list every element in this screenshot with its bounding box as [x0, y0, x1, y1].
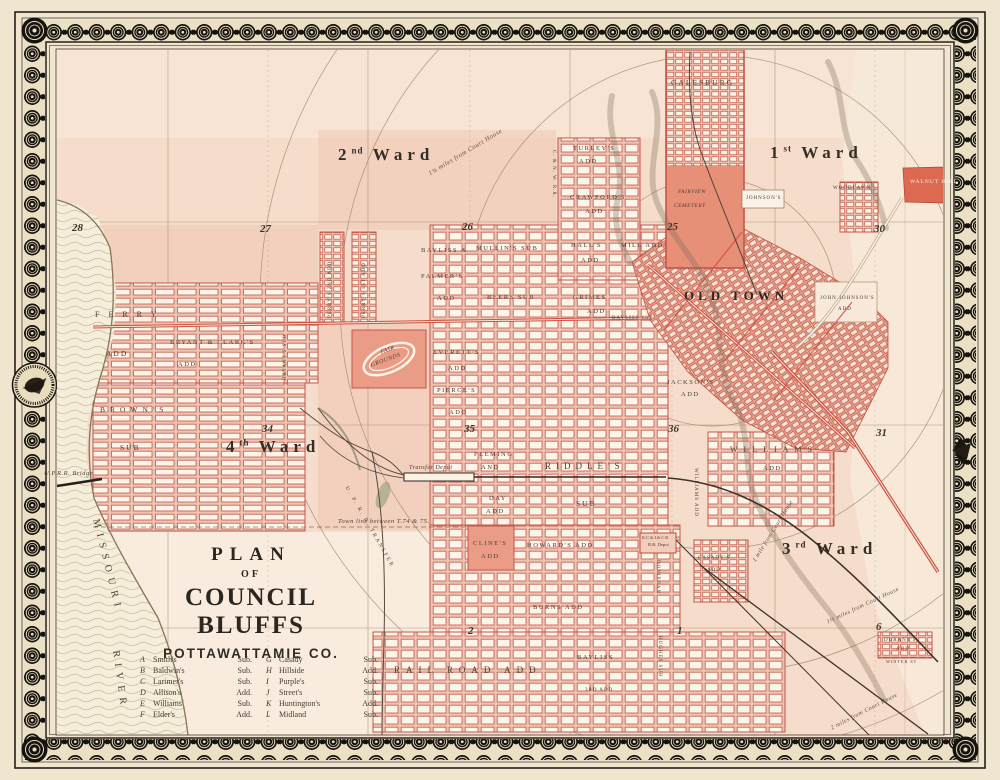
map-sheet: 2nd Ward 1st Ward 3rd Ward 4th Ward 28 2…	[0, 0, 1000, 780]
legend-type: Sub.	[226, 699, 252, 708]
label-john-johnsons-add: ADD	[838, 307, 852, 312]
legend-name: Huntington's	[279, 699, 352, 708]
legend-type: Sub.	[226, 677, 252, 686]
label-bryant-clark-add: ADD	[178, 362, 197, 369]
section-27: 27	[260, 224, 271, 235]
label-clines: CLINE'S	[473, 541, 507, 548]
label-jacksons: JACKSON'S	[667, 380, 715, 387]
legend-type: Add.	[352, 666, 378, 675]
section-30: 30	[874, 224, 885, 235]
label-ferry: FERRY	[95, 311, 165, 319]
label-browns-sub: SUB	[120, 444, 141, 452]
section-1: 1	[677, 626, 683, 637]
ward-2-label: 2nd Ward	[338, 146, 434, 163]
legend-row: EWilliamsSub.	[140, 699, 252, 710]
legend-name: Hillside	[279, 666, 352, 675]
note-rr-depot-2: R.R. Depot	[648, 543, 669, 548]
label-durants-add: ADD	[896, 647, 910, 652]
legend-column-right: GCasadySub. HHillsideAdd. IPurple'sSub. …	[266, 655, 378, 721]
label-pierces: PIERCE'S	[437, 388, 476, 395]
legend-type: Add.	[226, 710, 252, 719]
legend-name: Williams	[153, 699, 226, 708]
label-fleming: FLEMING	[474, 452, 513, 459]
label-clines-add: ADD	[481, 554, 500, 561]
label-everetts-add: ADD	[448, 366, 467, 373]
legend-row: JStreet'sSub.	[266, 688, 378, 699]
title-of: OF	[128, 569, 374, 580]
ward-4-label: 4th Ward	[226, 438, 320, 455]
legend-name: Allison's	[153, 688, 226, 697]
note-uprr-bridge: U.P.R.R. Bridge	[44, 471, 93, 478]
legend-key: I	[266, 677, 279, 686]
label-railroad-add: RAIL ROAD ADD	[394, 666, 542, 675]
section-34: 34	[262, 424, 273, 435]
label-everetts: EVERETT'S	[433, 350, 480, 357]
label-williams-add: ADD	[763, 466, 782, 473]
legend-name: Smith's	[153, 655, 226, 664]
label-bayliss-1st: BAYLISS 1ST	[612, 316, 653, 321]
legend-type: Add.	[226, 688, 252, 697]
legend-row: IPurple'sSub.	[266, 677, 378, 688]
label-day-add: ADD	[486, 509, 505, 516]
legend-key: G	[266, 655, 279, 664]
label-grimes-add: ADD	[587, 309, 606, 316]
label-turleys: TURLEY'S	[573, 146, 615, 153]
label-howards-add: HOWARD'S ADD	[527, 543, 594, 550]
section-26: 26	[462, 222, 473, 233]
legend-row: KHuntington'sAdd.	[266, 699, 378, 710]
note-town-line: Town line between T.74 & 75.	[338, 519, 429, 526]
distance-1-5: 1½ miles from Court House	[826, 587, 900, 626]
legend-name: Baldwin's	[153, 666, 226, 675]
legend-column-left: ASmith'sSub. BBaldwin'sSub. CLarimer'sSu…	[140, 655, 252, 721]
label-crawfords: CRAWFORD'S	[570, 195, 626, 202]
label-browns: BROWN'S	[100, 406, 168, 414]
note-cnw-rr: C. & N. W. R.R.	[551, 150, 556, 198]
legend-key: F	[140, 710, 153, 719]
legend-type: Sub.	[226, 655, 252, 664]
label-casadys: CASADY'S	[698, 556, 730, 561]
label-palmers: PALMER'S	[421, 274, 464, 281]
legend-type: Sub.	[352, 688, 378, 697]
label-doniphan: DONIPHAN	[655, 560, 660, 594]
legend-name: Purple's	[279, 677, 352, 686]
legend-name: Street's	[279, 688, 352, 697]
legend-type: Sub.	[352, 655, 378, 664]
label-galesburg: GALESBURG	[671, 79, 734, 87]
legend-row: BBaldwin'sSub.	[140, 666, 252, 677]
legend-name: Midland	[279, 710, 352, 719]
section-6: 6	[876, 622, 882, 633]
label-fleming-and: AND	[481, 465, 500, 472]
label-riddles-sub: SUB	[576, 500, 597, 508]
legend-key: H	[266, 666, 279, 675]
river-name-missouri: MISSOURI	[90, 518, 123, 613]
label-jacksons-add: ADD	[681, 392, 700, 399]
legend-row: HHillsideAdd.	[266, 666, 378, 677]
distance-1-75: 1¾ miles from Court House	[428, 128, 504, 177]
label-beers: BEERS SUB	[487, 295, 535, 302]
section-31: 31	[876, 428, 887, 439]
section-35: 35	[464, 424, 475, 435]
label-halls-add: ADD	[581, 258, 600, 265]
title-plan: PLAN	[128, 544, 374, 566]
label-grimes: GRIMES	[573, 295, 607, 302]
legend-type: Sub.	[352, 710, 378, 719]
legend: ASmith'sSub. BBaldwin'sSub. CLarimer'sSu…	[140, 655, 378, 721]
legend-key: B	[140, 666, 153, 675]
label-williams-vert: WILLIAMS ADD	[693, 468, 698, 517]
map-labels: 2nd Ward 1st Ward 3rd Ward 4th Ward 28 2…	[0, 0, 1000, 780]
river-name-river: RIVER	[110, 650, 128, 711]
title-block: PLAN OF COUNCIL BLUFFS POTTAWATTAMIE CO.	[128, 544, 374, 661]
label-durants: DURANT'S	[884, 638, 917, 643]
label-hughes: HUGHES SUB	[657, 636, 662, 677]
label-bryant-clark: BRYANT & CLARK'S	[170, 340, 255, 347]
legend-type: Sub.	[352, 677, 378, 686]
distance-2: 2 miles from Court House	[830, 692, 899, 731]
label-johnsons: JOHNSON'S	[746, 196, 781, 201]
legend-type: Sub.	[226, 666, 252, 675]
label-walnut-hill: WALNUT HILL	[910, 180, 958, 186]
label-riddles: RIDDLE'S	[545, 462, 625, 471]
legend-key: D	[140, 688, 153, 697]
legend-row: LMidlandSub.	[266, 710, 378, 721]
legend-key: K	[266, 699, 279, 708]
label-perrys-2nd: PERRY'S 2ND ADD	[328, 261, 333, 318]
label-day: DAY	[489, 496, 507, 503]
legend-key: L	[266, 710, 279, 719]
ward-1-label: 1st Ward	[770, 144, 863, 161]
legend-key: E	[140, 699, 153, 708]
label-mullins: MULLIN'S SUB	[476, 246, 538, 253]
label-woodlawn: WOODLAWN	[833, 186, 871, 191]
section-25: 25	[667, 222, 678, 233]
label-halls: HALL'S	[571, 243, 602, 250]
legend-name: Casady	[279, 655, 352, 664]
legend-row: GCasadySub.	[266, 655, 378, 666]
label-cemetery: CEMETERY	[674, 204, 706, 210]
legend-type: Add.	[352, 699, 378, 708]
legend-key: C	[140, 677, 153, 686]
ward-3-label: 3rd Ward	[782, 540, 877, 557]
label-williams: WILLIAMS	[730, 446, 818, 454]
note-rr-depot-1: K.C.St.J.& C.B.	[642, 536, 669, 540]
legend-row: FElder'sAdd.	[140, 710, 252, 721]
legend-key: A	[140, 655, 153, 664]
label-turleys-add: ADD	[579, 159, 598, 166]
label-bayliss-amp: BAYLISS &	[421, 248, 468, 255]
label-fairview: FAIRVIEW	[678, 190, 706, 196]
legend-row: CLarimer'sSub.	[140, 677, 252, 688]
legend-key: J	[266, 688, 279, 697]
label-casadys-add: ADD	[707, 568, 721, 573]
label-old-town: OLD TOWN	[684, 289, 788, 302]
label-mill-add: MILL ADD	[621, 243, 664, 250]
label-winter-st: WINTER ST	[886, 660, 917, 664]
note-transfer-depot: Transfer Depot	[409, 465, 453, 471]
section-2: 2	[468, 626, 474, 637]
title-city: COUNCIL BLUFFS	[128, 584, 374, 640]
label-ferry-add: ADD	[106, 350, 128, 358]
label-perrys-1st: PERRY'S 1ST ADD	[362, 262, 367, 318]
label-bayliss-3rd: 3RD ADD	[585, 688, 613, 693]
label-john-johnsons: JOHN JOHNSON'S	[820, 296, 875, 301]
legend-name: Elder's	[153, 710, 226, 719]
label-pierces-add: ADD	[449, 410, 468, 417]
legend-name: Larimer's	[153, 677, 226, 686]
label-bryants-sub: BRYANT'S SUB	[283, 334, 288, 380]
section-36: 36	[668, 424, 679, 435]
label-palmers-add: ADD	[437, 296, 456, 303]
label-bayliss-b: BAYLISS	[577, 655, 614, 662]
section-28: 28	[72, 223, 83, 234]
legend-row: ASmith'sSub.	[140, 655, 252, 666]
label-burns-add: BURNS ADD	[533, 605, 584, 612]
label-crawfords-add: ADD	[585, 209, 604, 216]
label-grounds: GROUNDS	[370, 352, 402, 368]
legend-row: DAllison'sAdd.	[140, 688, 252, 699]
